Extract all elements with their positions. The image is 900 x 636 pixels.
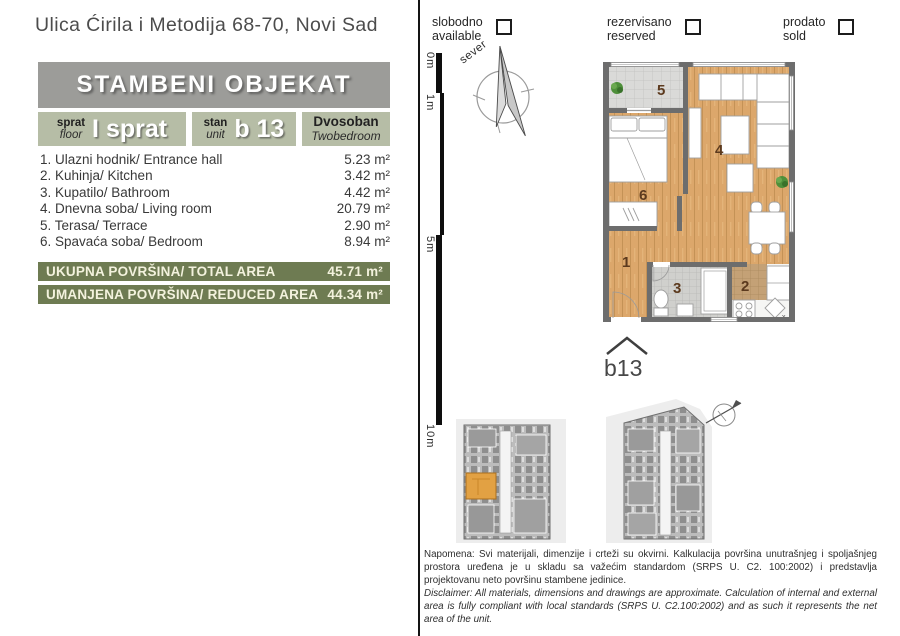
street-address: Ulica Ćirila i Metodija 68-70, Novi Sad — [35, 14, 378, 37]
unit-info-box: stan unit b 13 — [192, 112, 296, 146]
bathtub — [701, 268, 729, 314]
room-number-bathroom: 3 — [673, 280, 681, 297]
floor-value: I sprat — [92, 115, 167, 144]
scale-label-10m: 10m — [424, 424, 436, 448]
unit-info-row: sprat floor I sprat stan unit b 13 Dvoso… — [38, 112, 390, 146]
north-arrow-icon — [488, 44, 525, 138]
room-area: 4.42 m² — [344, 185, 390, 201]
plant — [611, 82, 623, 94]
coffee-table — [727, 164, 753, 192]
available-checkbox[interactable] — [496, 19, 512, 35]
unit-labels: stan unit — [204, 117, 228, 141]
unit-label-en: unit — [204, 129, 228, 141]
scale-label-0m: 0m — [424, 52, 436, 69]
sofa-vertical — [757, 74, 789, 168]
notes-block: Napomena: Svi materijali, dimenzije i cr… — [424, 549, 877, 627]
window — [693, 63, 785, 67]
pillow — [639, 118, 665, 131]
floor-label-sr: sprat — [57, 117, 85, 129]
room-number-kitchen: 2 — [741, 278, 749, 295]
legend-available-sr: slobodno — [432, 16, 483, 30]
building-left — [464, 425, 550, 539]
room-row: 2. Kuhinja/ Kitchen 3.42 m² — [40, 168, 390, 184]
room-area: 2.90 m² — [344, 218, 390, 234]
legend-sold-label: prodato sold — [783, 16, 825, 44]
reduced-area-bar: UMANJENA POVRŠINA/ REDUCED AREA 44.34 m² — [38, 285, 390, 304]
floor-label-en: floor — [57, 129, 85, 141]
legend-sold: prodato sold — [783, 16, 854, 44]
wardrobe — [609, 202, 657, 227]
legend-reserved-sr: rezervisano — [607, 16, 672, 30]
room-number-bedroom: 6 — [639, 187, 647, 204]
room-row: 6. Spavaća soba/ Bedroom 8.94 m² — [40, 234, 390, 250]
room-number-terrace: 5 — [657, 82, 665, 99]
dining-chair — [769, 202, 780, 213]
tv-cabinet — [689, 108, 701, 158]
unit-value: b 13 — [234, 115, 284, 144]
plant — [776, 176, 788, 188]
legend-reserved: rezervisano reserved — [607, 16, 701, 44]
note-english: Disclaimer: All materials, dimensions an… — [424, 588, 877, 627]
type-value-sr: Dvosoban — [313, 115, 378, 130]
scale-segment-1-5m — [440, 93, 444, 235]
building-title-banner: STAMBENI OBJEKAT — [38, 62, 390, 108]
dining-chair — [751, 202, 762, 213]
room-name: 5. Terasa/ Terrace — [40, 218, 148, 234]
floor-info-box: sprat floor I sprat — [38, 112, 186, 146]
flyer-page: Ulica Ćirila i Metodija 68-70, Novi Sad … — [0, 0, 900, 636]
dining-table — [749, 212, 785, 244]
site-compass-icon — [706, 400, 741, 426]
room-number-living: 4 — [715, 142, 724, 159]
window — [611, 63, 679, 67]
dining-chair — [769, 243, 780, 254]
toilet-tank — [654, 308, 668, 316]
room-area: 3.42 m² — [344, 168, 390, 184]
unit-marker-label: b13 — [604, 355, 642, 381]
room-area: 8.94 m² — [344, 234, 390, 250]
room-name: 6. Spavaća soba/ Bedroom — [40, 234, 203, 250]
site-plan — [448, 395, 748, 550]
legend-sold-en: sold — [783, 30, 825, 44]
room-name: 4. Dnevna soba/ Living room — [40, 201, 212, 217]
room-name: 1. Ulazni hodnik/ Entrance hall — [40, 152, 222, 168]
room-row: 5. Terasa/ Terrace 2.90 m² — [40, 218, 390, 234]
scale-label-5m: 5m — [424, 236, 436, 253]
room-area: 20.79 m² — [337, 201, 390, 217]
room-number-hall: 1 — [622, 254, 630, 271]
type-info-box: Dvosoban Twobedroom — [302, 112, 390, 146]
floor-labels: sprat floor — [57, 117, 85, 141]
window — [790, 182, 794, 232]
total-area-value: 45.71 m² — [327, 264, 383, 279]
room-list: 1. Ulazni hodnik/ Entrance hall 5.23 m² … — [40, 152, 390, 250]
legend-sold-sr: prodato — [783, 16, 825, 30]
legend-reserved-label: rezervisano reserved — [607, 16, 672, 44]
dining-chair — [751, 243, 762, 254]
room-row: 4. Dnevna soba/ Living room 20.79 m² — [40, 201, 390, 217]
reduced-area-label: UMANJENA POVRŠINA/ REDUCED AREA — [46, 287, 318, 302]
window — [711, 318, 737, 322]
reserved-checkbox[interactable] — [685, 19, 701, 35]
note-serbian: Napomena: Svi materijali, dimenzije i cr… — [424, 549, 877, 588]
type-value-en: Twobedroom — [311, 130, 380, 143]
room-row: 1. Ulazni hodnik/ Entrance hall 5.23 m² — [40, 152, 390, 168]
pillow — [611, 118, 637, 131]
reduced-area-value: 44.34 m² — [327, 287, 383, 302]
floor-plan: x — [599, 62, 809, 382]
building-title: STAMBENI OBJEKAT — [76, 71, 351, 99]
scale-label-1m: 1m — [424, 94, 436, 111]
total-area-label: UKUPNA POVRŠINA/ TOTAL AREA — [46, 264, 275, 279]
sideboard — [721, 116, 749, 154]
bathroom-sink — [677, 304, 693, 316]
panel-divider — [418, 0, 420, 636]
highlighted-unit-b13[interactable] — [466, 473, 496, 499]
compass-north-label: sever — [458, 40, 490, 66]
entrance-arrow-icon — [607, 338, 647, 354]
sold-checkbox[interactable] — [838, 19, 854, 35]
unit-label-sr: stan — [204, 117, 228, 129]
scale-segment-5-10m — [436, 235, 442, 425]
legend-reserved-en: reserved — [607, 30, 672, 44]
room-area: 5.23 m² — [344, 152, 390, 168]
room-row: 3. Kupatilo/ Bathroom 4.42 m² — [40, 185, 390, 201]
compass: sever — [453, 40, 553, 150]
toilet — [654, 290, 668, 308]
building-right — [624, 407, 704, 539]
room-name: 2. Kuhinja/ Kitchen — [40, 168, 153, 184]
total-area-bar: UKUPNA POVRŠINA/ TOTAL AREA 45.71 m² — [38, 262, 390, 281]
scale-segment-0-1m — [436, 53, 442, 93]
window — [790, 76, 794, 130]
room-name: 3. Kupatilo/ Bathroom — [40, 185, 170, 201]
